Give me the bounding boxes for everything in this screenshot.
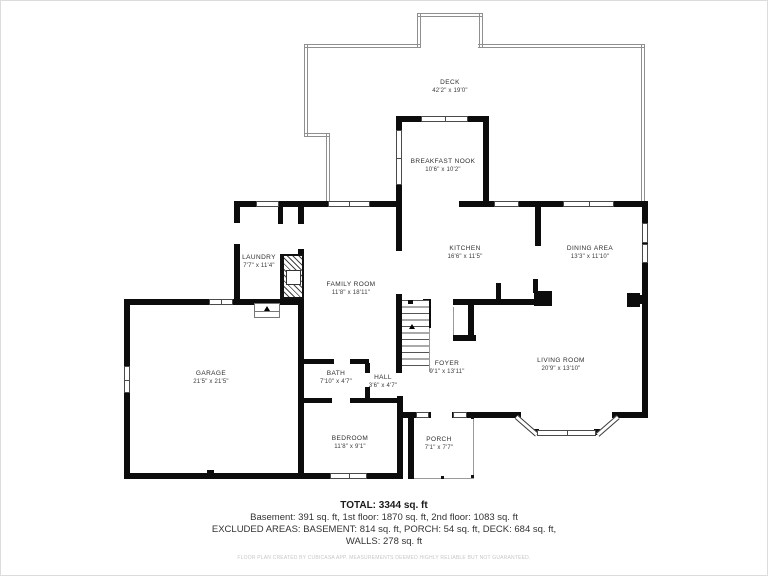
room-name: BREAKFAST NOOK	[411, 157, 476, 166]
room-label-kitchen: KITCHEN 16'6" x 11'5"	[447, 244, 482, 261]
total-area: TOTAL: 3344 sq. ft	[1, 499, 767, 512]
window	[494, 201, 519, 207]
wall-segment	[298, 299, 304, 479]
room-dims: 20'9" x 13'10"	[537, 365, 585, 373]
wall-segment	[535, 206, 541, 246]
wall-segment	[124, 473, 304, 479]
floor-plan: DECK 42'2" x 19'0" BREAKFAST NOOK 10'6" …	[0, 0, 768, 576]
room-name: KITCHEN	[447, 244, 482, 253]
room-name: BEDROOM	[332, 434, 368, 443]
bay-window-pane	[515, 415, 539, 436]
wall-segment	[408, 413, 414, 479]
room-label-foyer: FOYER 9'1" x 13'11"	[429, 359, 464, 376]
window	[563, 201, 614, 207]
room-label-deck: DECK 42'2" x 19'0"	[432, 78, 468, 95]
room-name: FAMILY ROOM	[327, 280, 376, 289]
room-dims: 11'8" x 9'1"	[332, 443, 368, 451]
porch-post	[471, 416, 474, 419]
wall-segment	[453, 299, 538, 305]
floor-areas: Basement: 391 sq. ft, 1st floor: 1870 sq…	[1, 512, 767, 524]
closet-door-line	[453, 307, 454, 335]
room-dims: 10'6" x 10'2"	[411, 166, 476, 174]
deck-rail	[417, 13, 483, 17]
wall-segment	[301, 398, 332, 403]
window-divider	[567, 431, 568, 435]
room-label-dining-area: DINING AREA 13'3" x 11'10"	[567, 244, 613, 261]
room-label-laundry: LAUNDRY 7'7" x 11'4"	[242, 253, 276, 270]
room-name: DECK	[432, 78, 468, 87]
room-name: BATH	[320, 369, 352, 378]
window	[396, 130, 402, 185]
room-label-porch: PORCH 7'1" x 7'7"	[425, 435, 453, 452]
room-label-bath: BATH 7'10" x 4'7"	[320, 369, 352, 386]
room-dims: 7'10" x 4'7"	[320, 378, 352, 386]
porch-edge	[473, 418, 474, 478]
stair-direction-arrow	[409, 324, 415, 329]
wall-segment	[234, 201, 240, 223]
room-name: FOYER	[429, 359, 464, 368]
room-name: DINING AREA	[567, 244, 613, 253]
window	[416, 412, 429, 418]
wall-segment	[618, 412, 648, 418]
window-divider	[589, 202, 590, 206]
deck-rail	[304, 44, 308, 137]
room-dims: 42'2" x 19'0"	[432, 87, 468, 95]
disclaimer: FLOOR PLAN CREATED BY CUBICASA APP. MEAS…	[1, 555, 767, 561]
window	[453, 412, 467, 418]
bay-window-pane	[596, 415, 620, 436]
stair-landing	[286, 270, 301, 285]
window	[328, 201, 370, 207]
wall-segment	[365, 363, 370, 373]
room-dims: 21'5" x 21'5"	[193, 378, 229, 386]
room-label-family-room: FAMILY ROOM 11'8" x 18'11"	[327, 280, 376, 297]
wall-segment	[350, 398, 399, 403]
room-label-garage: GARAGE 21'5" x 21'5"	[193, 369, 229, 386]
area-summary: TOTAL: 3344 sq. ft Basement: 391 sq. ft,…	[1, 499, 767, 561]
garage-entry-door	[209, 299, 233, 305]
wall-segment	[301, 359, 334, 364]
room-label-hall: HALL 3'6" x 4'7"	[369, 373, 397, 390]
wall-segment	[397, 396, 403, 479]
room-label-breakfast-nook: BREAKFAST NOOK 10'6" x 10'2"	[411, 157, 476, 174]
room-name: LIVING ROOM	[537, 356, 585, 365]
porch-post	[471, 475, 474, 478]
window	[642, 244, 648, 263]
window-divider	[221, 300, 222, 304]
wall-segment	[298, 201, 304, 224]
deck-rail	[478, 44, 644, 48]
wall-segment	[483, 116, 489, 206]
room-dims: 3'6" x 4'7"	[369, 382, 397, 390]
wall-segment	[396, 206, 402, 251]
room-name: LAUNDRY	[242, 253, 276, 262]
room-label-living-room: LIVING ROOM 20'9" x 13'10"	[537, 356, 585, 373]
wall-segment	[207, 470, 214, 474]
room-name: HALL	[369, 373, 397, 382]
wall-segment	[484, 412, 518, 418]
wall-segment	[124, 299, 211, 305]
room-dims: 11'8" x 18'11"	[327, 289, 376, 297]
deck-rail	[417, 13, 421, 48]
room-dims: 7'7" x 11'4"	[242, 262, 276, 270]
deck-rail	[304, 44, 420, 48]
window-divider	[349, 474, 350, 478]
window-divider	[125, 380, 129, 381]
porch-post	[441, 476, 444, 479]
deck-rail	[326, 133, 330, 203]
porch-edge	[414, 478, 474, 479]
room-name: PORCH	[425, 435, 453, 444]
deck-rail	[479, 13, 483, 48]
excluded-areas: EXCLUDED AREAS: BASEMENT: 814 sq. ft, PO…	[1, 524, 767, 536]
wall-areas: WALLS: 278 sq. ft	[1, 536, 767, 548]
window	[124, 366, 130, 393]
wall-segment	[496, 283, 501, 299]
wall-segment	[453, 335, 476, 341]
wall-segment	[638, 295, 648, 304]
steps-direction-arrow	[264, 306, 270, 311]
window	[330, 473, 367, 479]
window	[421, 116, 468, 122]
window	[642, 223, 648, 243]
room-dims: 7'1" x 7'7"	[425, 444, 453, 452]
window-divider	[397, 158, 401, 159]
room-name: GARAGE	[193, 369, 229, 378]
room-dims: 16'6" x 11'5"	[447, 253, 482, 261]
window-divider	[349, 202, 350, 206]
room-label-bedroom: BEDROOM 11'8" x 9'1"	[332, 434, 368, 451]
window-divider	[445, 117, 446, 121]
wall-segment	[234, 244, 240, 299]
room-dims: 9'1" x 13'11"	[429, 368, 464, 376]
stair-marker	[408, 300, 413, 304]
deck-rail	[641, 44, 645, 203]
stair-treads	[402, 300, 429, 368]
bay-window-pane	[537, 430, 596, 436]
window	[256, 201, 279, 207]
room-dims: 13'3" x 11'10"	[567, 253, 613, 261]
